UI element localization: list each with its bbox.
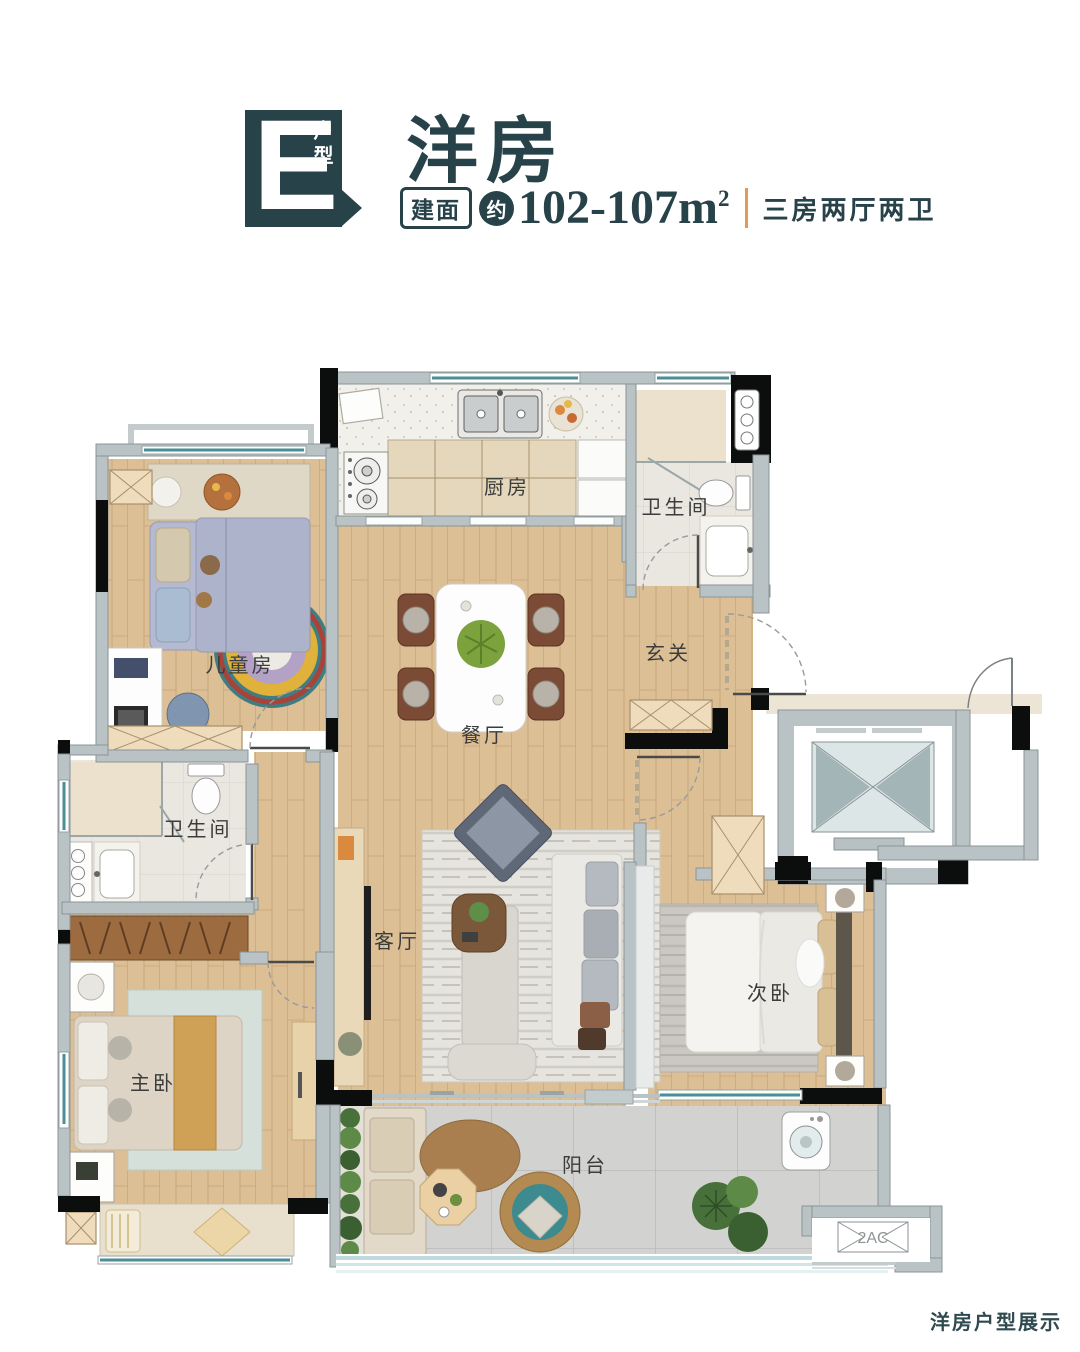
label-dining: 餐厅	[461, 724, 507, 747]
sofa	[552, 854, 622, 1050]
stove-icon	[344, 452, 388, 514]
kitchen-sink-icon	[458, 390, 542, 438]
label-bath-top: 卫生间	[642, 496, 711, 519]
plan-caption: 洋房户型展示	[930, 1306, 1062, 1335]
food-plate	[549, 397, 583, 431]
label-second: 次卧	[747, 982, 793, 1005]
label-bath-left: 卫生间	[164, 818, 233, 841]
label-kitchen: 厨房	[484, 476, 530, 499]
plant-icon	[338, 1032, 362, 1056]
tv-icon	[364, 886, 371, 1020]
kids-bed	[150, 518, 310, 652]
papasan-chair	[500, 1172, 580, 1252]
ottoman	[448, 1044, 536, 1080]
outdoor-table	[420, 1169, 476, 1225]
label-living: 客厅	[374, 930, 420, 953]
label-master: 主卧	[130, 1072, 176, 1095]
window-bench	[148, 464, 310, 520]
label-entry: 玄关	[645, 642, 691, 665]
ac-platform: 2AC	[802, 1206, 942, 1272]
elevator-shaft-icon	[812, 742, 934, 832]
elevator-core	[778, 658, 1038, 884]
floor-plan-svg: 2AC 厨房 卫生间 玄关 餐厅 儿童房	[0, 0, 1080, 1352]
dresser	[70, 916, 248, 960]
label-balcony: 阳台	[562, 1154, 608, 1177]
shoe-cabinet	[630, 700, 712, 730]
washing-machine-icon	[782, 1112, 830, 1170]
bath-sink-icon	[700, 516, 754, 588]
outdoor-sofa	[364, 1108, 426, 1256]
label-kids: 儿童房	[206, 654, 275, 677]
bay-window-bench	[100, 1204, 294, 1256]
ac-platform-label: 2AC	[857, 1230, 888, 1247]
dining-table	[436, 584, 526, 732]
kids-wardrobe	[108, 726, 242, 752]
floor-plan-page: E 户型 洋房 建面 约 102-107m2 三房两厅两卫	[0, 0, 1080, 1352]
bath-sink-icon	[94, 842, 140, 906]
coffee-table	[452, 894, 506, 952]
